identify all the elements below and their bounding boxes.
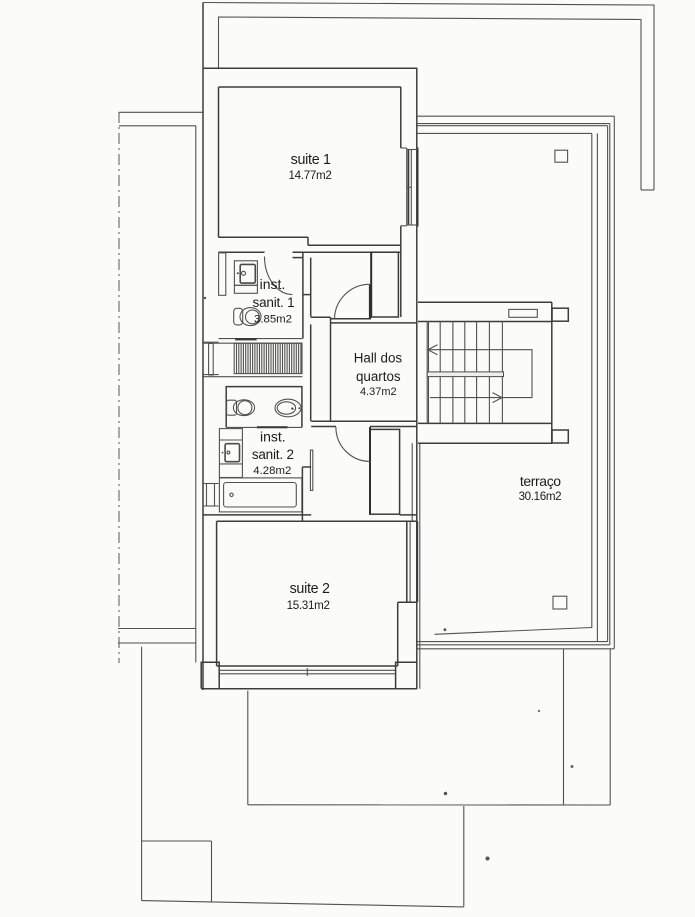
svg-text:suite 2: suite 2	[290, 581, 330, 597]
svg-text:30.16m2: 30.16m2	[519, 490, 562, 503]
svg-text:quartos: quartos	[356, 369, 401, 384]
svg-text:terraço: terraço	[520, 473, 561, 489]
svg-text:Hall dos: Hall dos	[354, 351, 403, 366]
svg-text:4.28m2: 4.28m2	[253, 465, 291, 477]
svg-text:suite 1: suite 1	[291, 152, 331, 168]
svg-text:inst.: inst.	[260, 276, 286, 292]
svg-text:sanit. 2: sanit. 2	[252, 447, 294, 462]
svg-text:inst.: inst.	[260, 429, 286, 445]
svg-text:15.31m2: 15.31m2	[287, 599, 330, 612]
svg-text:3.85m2: 3.85m2	[254, 314, 292, 326]
svg-text:14.77m2: 14.77m2	[288, 169, 331, 182]
svg-text:sanit. 1: sanit. 1	[253, 295, 295, 310]
svg-text:4.37m2: 4.37m2	[360, 386, 397, 398]
